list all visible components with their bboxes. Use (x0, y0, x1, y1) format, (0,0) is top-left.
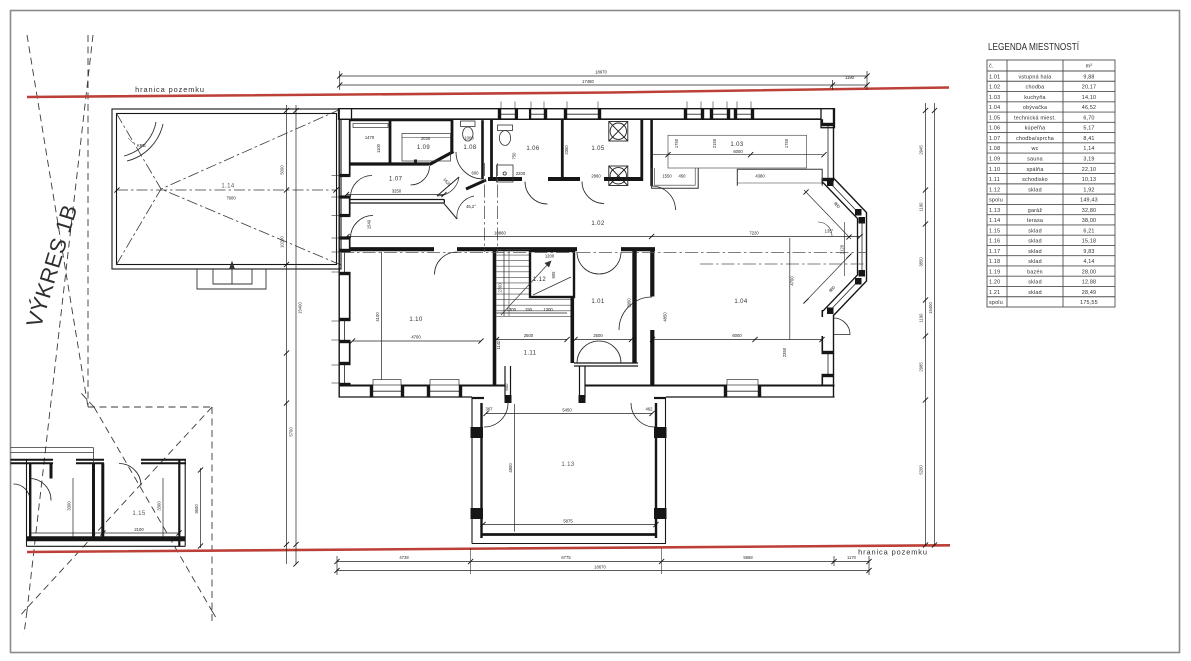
svg-text:5700: 5700 (289, 427, 294, 437)
svg-text:22,10: 22,10 (1082, 167, 1097, 173)
svg-text:1190: 1190 (919, 313, 924, 323)
svg-text:1.07: 1.07 (389, 177, 403, 183)
svg-text:15400: 15400 (298, 302, 303, 314)
svg-text:2860: 2860 (591, 174, 601, 179)
svg-text:18670: 18670 (595, 70, 607, 75)
svg-text:3,19: 3,19 (1083, 156, 1094, 162)
svg-text:7600: 7600 (226, 196, 236, 201)
svg-text:1.05: 1.05 (989, 115, 1000, 121)
svg-text:3950: 3950 (627, 298, 632, 308)
svg-text:45,2°: 45,2° (466, 204, 476, 209)
svg-text:1.14: 1.14 (989, 218, 1000, 224)
svg-text:2350: 2350 (564, 145, 569, 155)
svg-text:m²: m² (1086, 64, 1093, 70)
svg-text:1.14: 1.14 (221, 184, 235, 190)
svg-text:2200: 2200 (516, 171, 526, 176)
svg-text:1.05: 1.05 (591, 146, 605, 152)
svg-text:1.11: 1.11 (989, 177, 1000, 183)
svg-text:chodba/sprcha: chodba/sprcha (1016, 136, 1054, 142)
svg-text:6,70: 6,70 (1083, 115, 1094, 121)
svg-text:1190: 1190 (919, 202, 924, 212)
svg-text:4850: 4850 (663, 312, 668, 322)
svg-text:1.02: 1.02 (591, 221, 605, 227)
svg-text:garáž: garáž (1028, 208, 1043, 214)
svg-text:5450: 5450 (562, 407, 572, 412)
svg-text:18670: 18670 (594, 565, 606, 570)
svg-text:sklad: sklad (1028, 290, 1042, 296)
svg-text:1750: 1750 (674, 138, 679, 148)
svg-text:1100: 1100 (376, 143, 381, 153)
svg-text:2150: 2150 (712, 138, 717, 148)
svg-text:6000: 6000 (733, 149, 743, 154)
svg-text:1.15: 1.15 (132, 511, 146, 517)
svg-text:spolu: spolu (989, 198, 1003, 204)
svg-text:12,88: 12,88 (1082, 280, 1097, 286)
svg-text:1.12: 1.12 (533, 277, 547, 283)
svg-text:3250: 3250 (392, 188, 402, 193)
svg-text:4700: 4700 (789, 276, 794, 286)
svg-text:367: 367 (486, 407, 494, 412)
svg-text:1140: 1140 (496, 340, 501, 350)
svg-text:10860: 10860 (494, 230, 506, 235)
svg-text:1.10: 1.10 (989, 167, 1000, 173)
svg-text:1300: 1300 (543, 307, 553, 312)
svg-text:1.01: 1.01 (591, 299, 605, 305)
svg-text:3600: 3600 (194, 504, 199, 514)
svg-text:1.16: 1.16 (989, 239, 1000, 245)
svg-text:kuchyňa: kuchyňa (1024, 95, 1045, 101)
svg-text:600: 600 (472, 171, 480, 176)
svg-text:6000: 6000 (732, 333, 742, 338)
svg-text:5200: 5200 (919, 465, 924, 475)
svg-text:1.18: 1.18 (989, 259, 1000, 265)
svg-text:wc: wc (1031, 146, 1039, 152)
svg-text:28,49: 28,49 (1082, 290, 1097, 296)
svg-text:chodba: chodba (1026, 85, 1045, 91)
svg-text:1.15: 1.15 (989, 228, 1000, 234)
svg-text:1190: 1190 (845, 75, 855, 80)
svg-text:905: 905 (551, 271, 556, 279)
svg-text:1.07: 1.07 (989, 136, 1000, 142)
svg-text:1.04: 1.04 (989, 105, 1000, 111)
svg-text:1.08: 1.08 (989, 146, 1000, 152)
svg-text:600: 600 (504, 383, 509, 391)
svg-text:1.06: 1.06 (989, 126, 1000, 132)
svg-text:4700: 4700 (411, 335, 421, 340)
svg-text:6775: 6775 (561, 555, 571, 560)
svg-text:3300: 3300 (157, 501, 162, 511)
svg-text:5,17: 5,17 (1083, 126, 1094, 132)
svg-text:10200: 10200 (280, 236, 285, 248)
svg-text:sklad: sklad (1028, 239, 1042, 245)
svg-text:450: 450 (679, 173, 687, 178)
svg-text:5968: 5968 (743, 555, 753, 560)
svg-text:750: 750 (512, 152, 517, 160)
svg-text:150: 150 (525, 307, 533, 312)
svg-text:15400: 15400 (928, 302, 933, 314)
svg-text:technická miest.: technická miest. (1014, 115, 1056, 121)
svg-text:9,88: 9,88 (1083, 74, 1094, 80)
svg-text:hranica pozemku: hranica pozemku (135, 85, 205, 94)
svg-text:4,14: 4,14 (1083, 259, 1094, 265)
svg-text:1750: 1750 (784, 138, 789, 148)
svg-text:46,52: 46,52 (1082, 105, 1097, 111)
svg-text:1200: 1200 (545, 254, 555, 259)
svg-text:4738: 4738 (399, 555, 409, 560)
svg-text:5875: 5875 (563, 518, 573, 523)
svg-text:2350: 2350 (782, 347, 787, 357)
svg-text:1.04: 1.04 (734, 299, 748, 305)
svg-text:4100: 4100 (375, 312, 380, 322)
svg-text:1.03: 1.03 (730, 142, 744, 148)
svg-text:1.02: 1.02 (989, 85, 1000, 91)
svg-text:28,00: 28,00 (1082, 269, 1097, 275)
svg-text:1170: 1170 (847, 555, 857, 560)
svg-text:schodisko: schodisko (1022, 177, 1048, 183)
svg-text:terasa: terasa (1027, 218, 1043, 224)
svg-text:KRB: KRB (137, 143, 146, 148)
svg-text:5000: 5000 (280, 165, 285, 175)
svg-text:1.20: 1.20 (989, 280, 1000, 286)
svg-text:32,80: 32,80 (1082, 208, 1097, 214)
svg-text:1.09: 1.09 (989, 156, 1000, 162)
svg-text:4380: 4380 (755, 173, 765, 178)
svg-text:175,55: 175,55 (1080, 300, 1098, 306)
svg-text:1300: 1300 (507, 307, 517, 312)
svg-text:1.21: 1.21 (989, 290, 1000, 296)
svg-text:sklad: sklad (1028, 249, 1042, 255)
svg-text:bazén: bazén (1027, 269, 1043, 275)
svg-text:462: 462 (646, 407, 654, 412)
svg-text:1550: 1550 (662, 173, 672, 178)
svg-text:1.13: 1.13 (989, 208, 1000, 214)
svg-text:vstupná hala: vstupná hala (1019, 74, 1052, 80)
svg-text:6,21: 6,21 (1083, 228, 1094, 234)
svg-text:1.13: 1.13 (561, 462, 575, 468)
svg-text:8,41: 8,41 (1083, 136, 1094, 142)
svg-text:sklad: sklad (1028, 228, 1042, 234)
svg-text:č.: č. (989, 64, 994, 70)
svg-text:149,43: 149,43 (1080, 198, 1098, 204)
svg-text:1000: 1000 (464, 135, 474, 140)
svg-text:1.19: 1.19 (989, 269, 1000, 275)
svg-text:1.01: 1.01 (989, 74, 1000, 80)
svg-text:2985: 2985 (919, 362, 924, 372)
svg-text:3850: 3850 (919, 257, 924, 267)
svg-text:sklad: sklad (1028, 187, 1042, 193)
svg-text:1.17: 1.17 (989, 249, 1000, 255)
svg-text:2030: 2030 (421, 136, 431, 141)
svg-text:2100: 2100 (134, 527, 144, 532)
svg-text:2500: 2500 (593, 333, 603, 338)
svg-text:14,10: 14,10 (1082, 95, 1097, 101)
svg-text:1,92: 1,92 (1083, 187, 1094, 193)
svg-text:10,13: 10,13 (1082, 177, 1097, 183)
svg-text:38,00: 38,00 (1082, 218, 1097, 224)
svg-text:1.10: 1.10 (409, 317, 423, 323)
svg-text:9,83: 9,83 (1083, 249, 1094, 255)
svg-text:20,17: 20,17 (1082, 85, 1097, 91)
svg-text:2120: 2120 (840, 244, 845, 254)
svg-text:kúpeľňa: kúpeľňa (1025, 126, 1046, 132)
svg-text:135°: 135° (825, 229, 834, 234)
svg-text:15,18: 15,18 (1082, 239, 1097, 245)
svg-text:2945: 2945 (919, 145, 924, 155)
svg-text:1.08: 1.08 (463, 145, 477, 151)
svg-text:17480: 17480 (582, 79, 594, 84)
svg-text:sklad: sklad (1028, 280, 1042, 286)
svg-text:sauna: sauna (1027, 156, 1043, 162)
svg-text:2700: 2700 (498, 283, 503, 293)
svg-text:1.06: 1.06 (526, 146, 540, 152)
svg-text:spálňa: spálňa (1026, 167, 1043, 173)
svg-text:1.11: 1.11 (524, 351, 537, 357)
svg-text:LEGENDA MIESTNOSTÍ: LEGENDA MIESTNOSTÍ (988, 40, 1079, 53)
svg-text:1470: 1470 (365, 135, 375, 140)
svg-text:obývačka: obývačka (1023, 105, 1047, 111)
svg-text:sklad: sklad (1028, 259, 1042, 265)
svg-text:1.09: 1.09 (417, 145, 431, 151)
svg-text:spolu: spolu (989, 300, 1003, 306)
svg-text:1,14: 1,14 (1083, 146, 1094, 152)
svg-text:2500: 2500 (524, 333, 534, 338)
svg-text:3300: 3300 (67, 501, 72, 511)
svg-text:hranica pozemku: hranica pozemku (858, 548, 928, 557)
svg-text:1.12: 1.12 (989, 187, 1000, 193)
svg-text:1.03: 1.03 (989, 95, 1000, 101)
svg-text:7220: 7220 (749, 230, 759, 235)
svg-text:4800: 4800 (508, 463, 513, 473)
svg-text:1540: 1540 (367, 219, 372, 229)
